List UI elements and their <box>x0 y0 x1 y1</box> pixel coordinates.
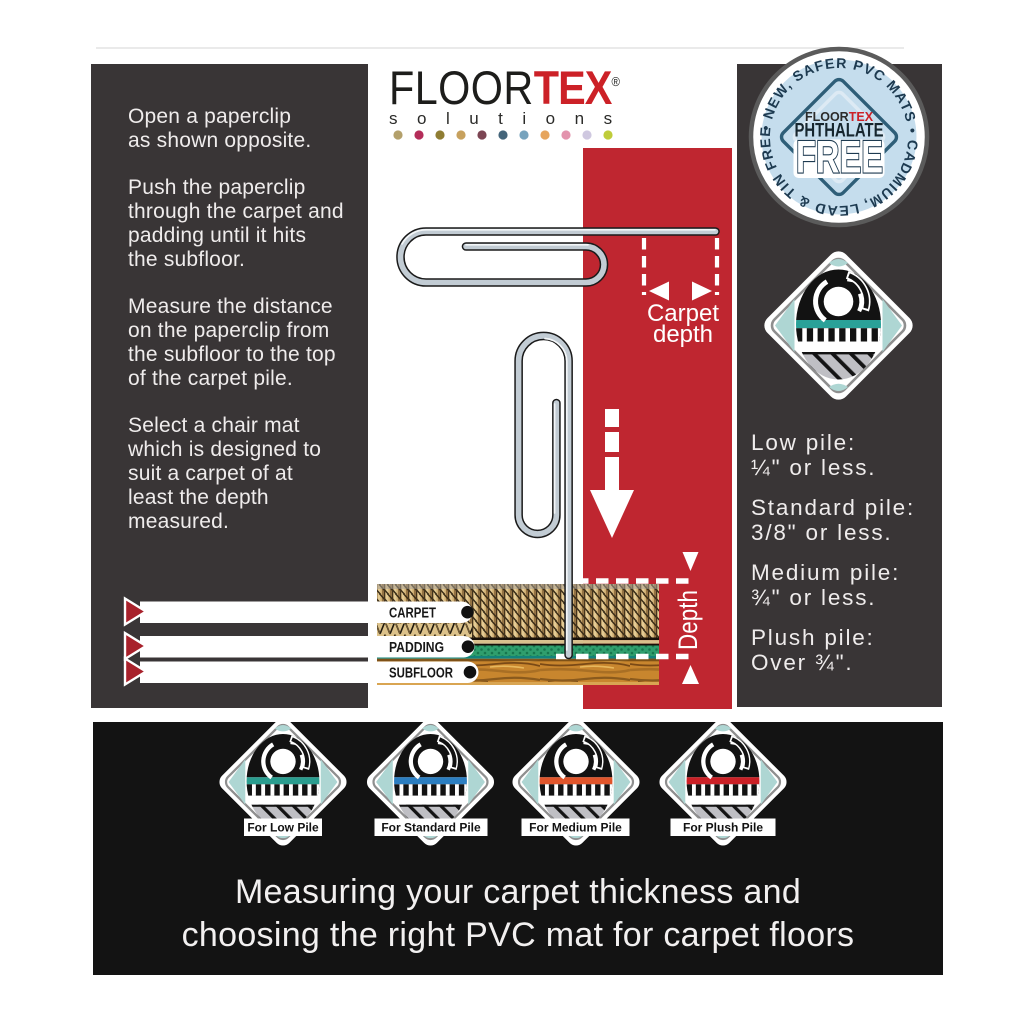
svg-text:For Low Pile: For Low Pile <box>247 821 319 835</box>
svg-text:For Medium Pile: For Medium Pile <box>529 821 622 835</box>
svg-text:SUBFLOOR: SUBFLOOR <box>389 666 453 682</box>
svg-text:For Plush Pile: For Plush Pile <box>683 821 763 835</box>
svg-text:CARPET: CARPET <box>389 606 436 622</box>
svg-text:depth: depth <box>653 321 713 348</box>
svg-text:For Standard Pile: For Standard Pile <box>381 821 481 835</box>
svg-text:FREE: FREE <box>796 132 883 183</box>
svg-text:Depth: Depth <box>673 590 703 650</box>
svg-text:PADDING: PADDING <box>389 640 444 656</box>
